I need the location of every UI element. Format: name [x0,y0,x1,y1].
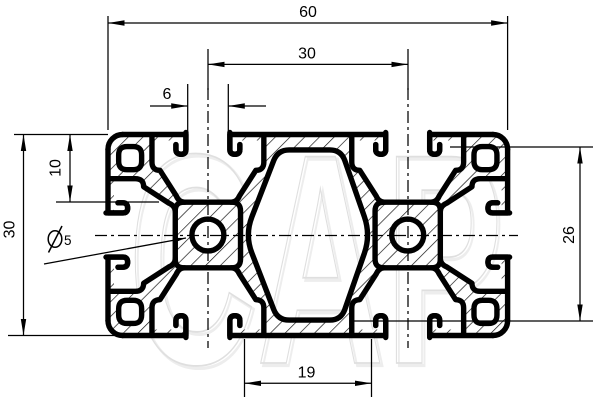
svg-text:19: 19 [298,365,316,382]
svg-text:26: 26 [561,226,578,244]
svg-text:6: 6 [163,86,172,103]
svg-text:10: 10 [48,159,65,177]
svg-text:30: 30 [298,46,316,63]
svg-text:5: 5 [64,233,72,248]
svg-text:60: 60 [299,4,317,21]
svg-text:30: 30 [2,221,19,239]
